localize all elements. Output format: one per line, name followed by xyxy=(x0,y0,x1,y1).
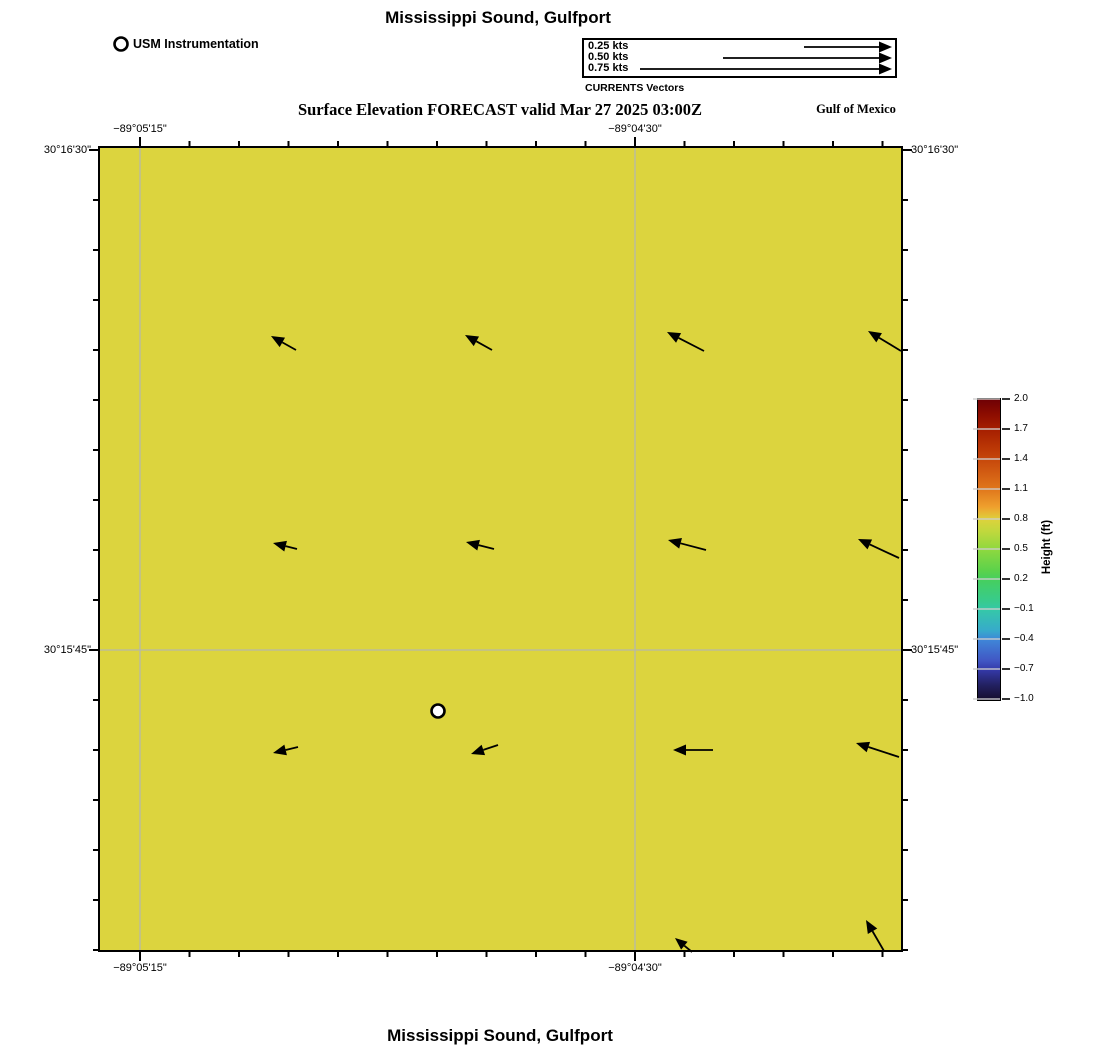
page-title: Mississippi Sound, Gulfport xyxy=(385,8,611,28)
vector-scale-label: 0.75 kts xyxy=(588,63,628,74)
forecast-plot: Mississippi Sound, Gulfport USM Instrume… xyxy=(0,0,1100,1050)
instrument-legend-label: USM Instrumentation xyxy=(133,37,259,51)
colorbar-tick-label: −0.7 xyxy=(1014,663,1034,674)
x-axis-label-top: −89°05'15" xyxy=(80,123,200,135)
map-area xyxy=(98,146,903,952)
forecast-subtitle: Surface Elevation FORECAST valid Mar 27 … xyxy=(298,100,702,120)
y-axis-label-left: 30°15'45" xyxy=(1,644,91,656)
colorbar xyxy=(977,398,1001,701)
colorbar-tick-label: 1.7 xyxy=(1014,423,1028,434)
colorbar-tick-label: 0.5 xyxy=(1014,543,1028,554)
colorbar-tick-label: 0.8 xyxy=(1014,513,1028,524)
colorbar-tick-label: 2.0 xyxy=(1014,393,1028,404)
y-axis-label-right: 30°16'30" xyxy=(911,144,958,156)
colorbar-tick-label: −0.4 xyxy=(1014,633,1034,644)
instrument-legend-marker-icon xyxy=(115,38,128,51)
x-axis-label-bottom: −89°04'30" xyxy=(575,962,695,974)
y-axis-label-right: 30°15'45" xyxy=(911,644,958,656)
colorbar-tick-label: −0.1 xyxy=(1014,603,1034,614)
colorbar-tick-label: 0.2 xyxy=(1014,573,1028,584)
vector-legend-caption: CURRENTS Vectors xyxy=(585,82,684,94)
footer-title: Mississippi Sound, Gulfport xyxy=(387,1026,613,1046)
x-axis-label-bottom: −89°05'15" xyxy=(80,962,200,974)
colorbar-tick-label: −1.0 xyxy=(1014,693,1034,704)
region-label: Gulf of Mexico xyxy=(816,102,896,117)
colorbar-tick-label: 1.1 xyxy=(1014,483,1028,494)
x-axis-label-top: −89°04'30" xyxy=(575,123,695,135)
y-axis-label-left: 30°16'30" xyxy=(1,144,91,156)
vector-scale-legend-box xyxy=(582,38,897,78)
colorbar-tick-label: 1.4 xyxy=(1014,453,1028,464)
colorbar-title: Height (ft) xyxy=(1041,520,1053,574)
